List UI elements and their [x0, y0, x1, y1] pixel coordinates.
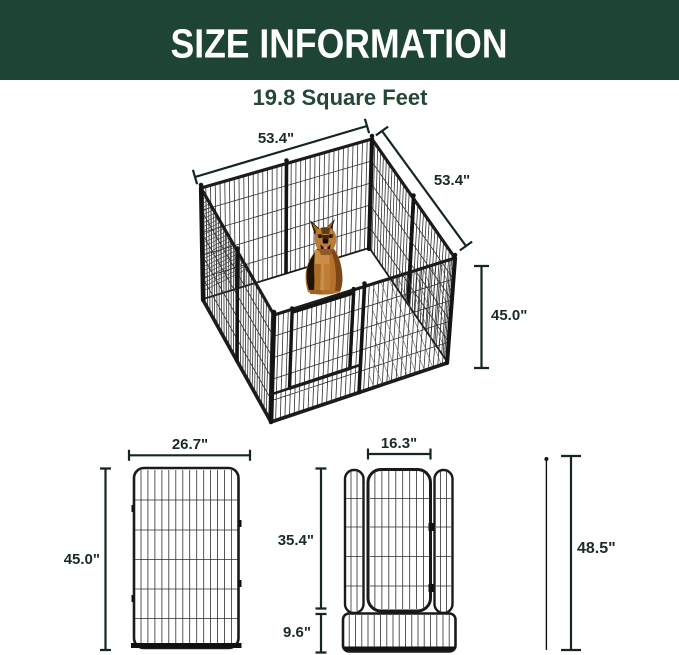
svg-text:45.0": 45.0" — [491, 307, 527, 324]
svg-text:SIZE INFORMATION: SIZE INFORMATION — [171, 21, 508, 67]
svg-text:48.5": 48.5" — [577, 540, 616, 557]
svg-text:19.8 Square Feet: 19.8 Square Feet — [253, 85, 429, 110]
svg-text:9.6": 9.6" — [283, 624, 311, 641]
svg-text:53.4": 53.4" — [258, 130, 294, 147]
svg-text:16.3": 16.3" — [381, 435, 417, 452]
svg-text:35.4": 35.4" — [278, 532, 314, 549]
svg-text:26.7": 26.7" — [172, 436, 208, 453]
svg-text:45.0": 45.0" — [64, 551, 100, 568]
svg-text:53.4": 53.4" — [434, 172, 470, 189]
